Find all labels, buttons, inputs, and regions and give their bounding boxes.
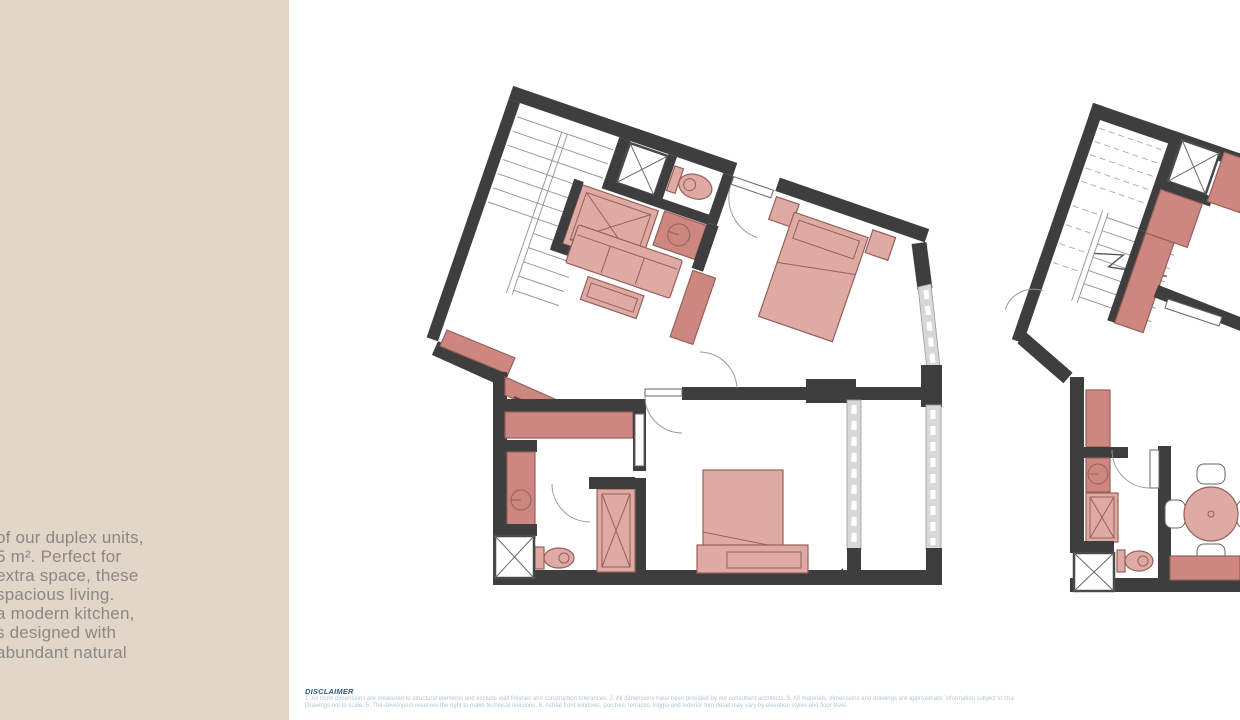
toilet-icon: [667, 166, 716, 205]
brochure-page: of our duplex units, 5 m². Perfect for e…: [0, 0, 1240, 720]
disclaimer-line-1: 1. All room dimensions are measured to s…: [305, 696, 1240, 703]
interior-door: [1150, 450, 1159, 488]
tv-sideboard: [670, 270, 715, 344]
vent-shaft: [1070, 541, 1114, 591]
wall: [1022, 338, 1068, 378]
hall-door: [635, 414, 644, 466]
disclaimer-line-2: Drawings not to scale. 5. The developers…: [305, 703, 1240, 710]
bedroom-door: [645, 389, 682, 396]
dining-table: [1184, 487, 1238, 541]
vent-shaft: [493, 524, 537, 578]
toilet-icon: [1117, 550, 1153, 572]
vanity: [1086, 458, 1110, 492]
bed-second: [697, 470, 808, 573]
shower: [1086, 493, 1118, 542]
floor-plans: [0, 0, 1240, 720]
disclaimer-title: DISCLAIMER: [305, 687, 1240, 696]
wall: [1070, 377, 1084, 547]
shower: [597, 489, 635, 572]
disclaimer-block: DISCLAIMER 1. All room dimensions are me…: [305, 687, 1240, 710]
kitchen-counters: [505, 377, 646, 438]
counter: [1170, 556, 1240, 580]
secondary-floor-plan: [997, 98, 1240, 592]
bedroom-2: [645, 352, 923, 573]
toilet-icon: [535, 547, 574, 569]
main-floor-plan: [427, 86, 942, 585]
counter: [1086, 390, 1110, 447]
dining-set: [1165, 464, 1240, 564]
